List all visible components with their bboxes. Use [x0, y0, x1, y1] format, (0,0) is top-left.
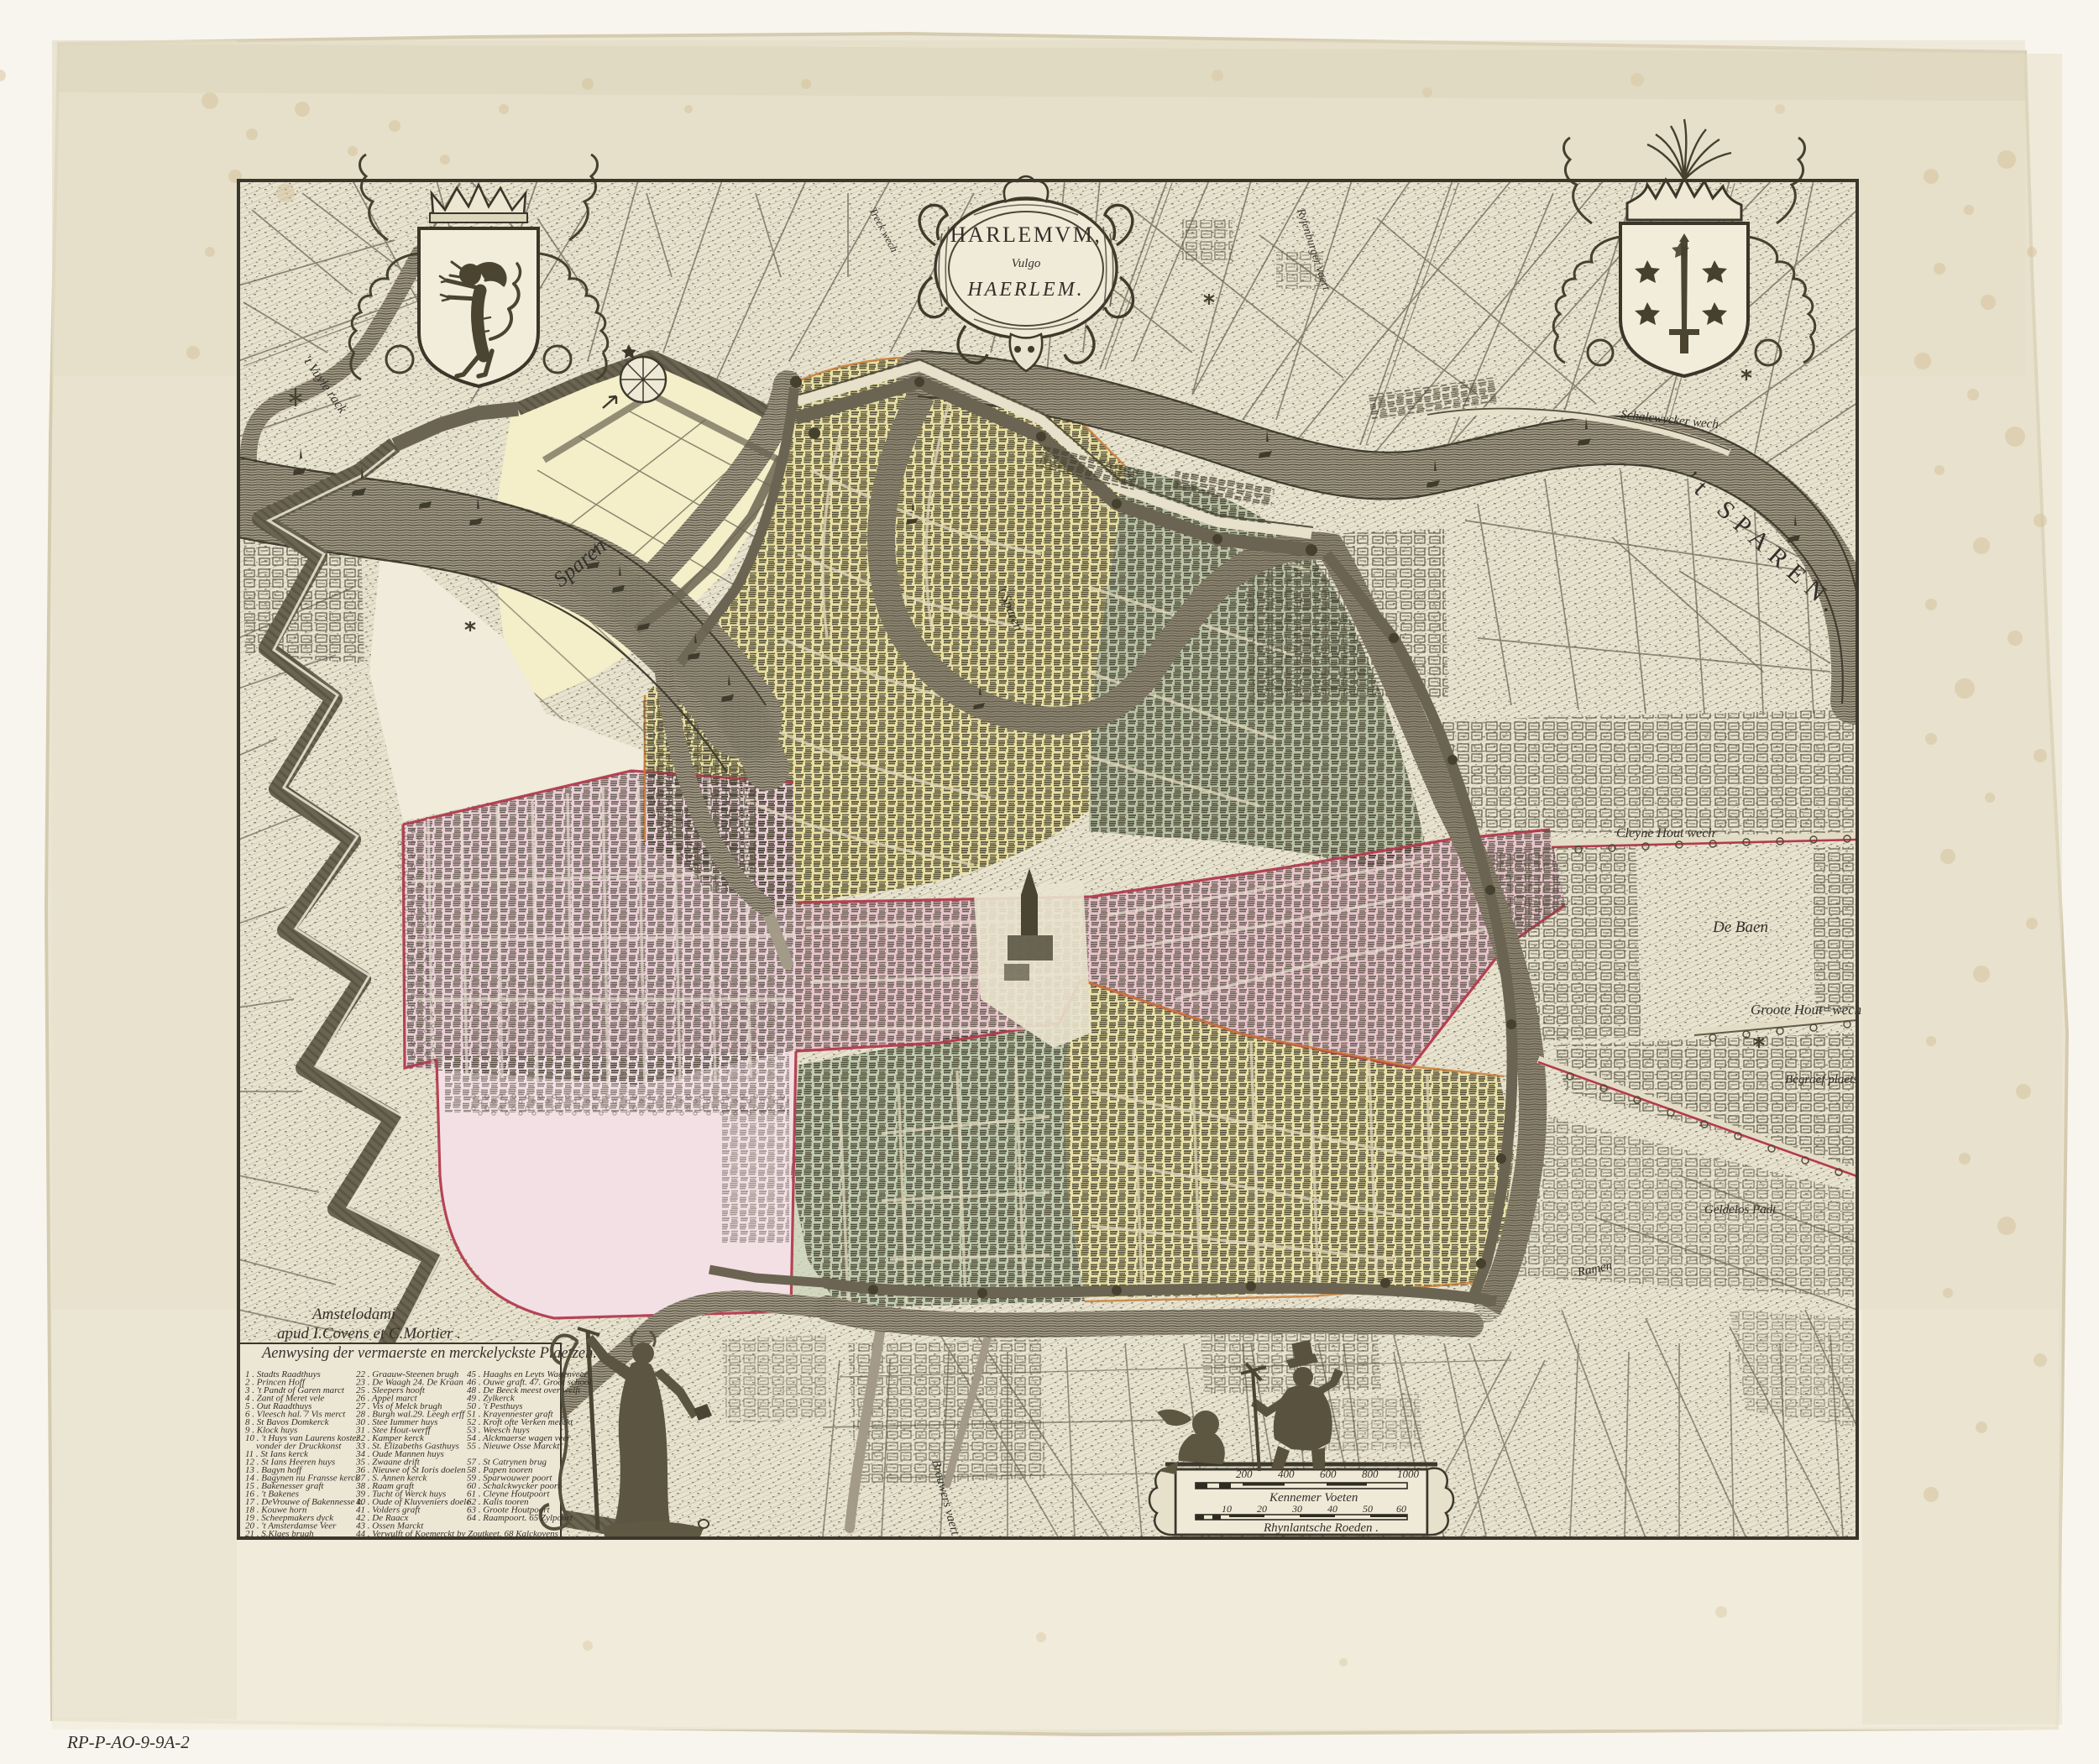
- svg-text:Begraef plaets: Begraef plaets: [1785, 1073, 1858, 1086]
- svg-text:50: 50: [1363, 1503, 1373, 1515]
- svg-text:800: 800: [1362, 1468, 1379, 1480]
- svg-text:Vulgo: Vulgo: [1012, 257, 1041, 270]
- svg-text:Amstelodami: Amstelodami: [311, 1306, 395, 1323]
- svg-text:200: 200: [1236, 1468, 1253, 1480]
- svg-text:HAERLEM.: HAERLEM.: [966, 279, 1084, 301]
- svg-text:Rhynlantsche Roeden .: Rhynlantsche Roeden .: [1263, 1521, 1379, 1535]
- svg-text:60: 60: [1396, 1503, 1406, 1515]
- svg-text:Groote Hout=wech: Groote Hout=wech: [1751, 1002, 1861, 1018]
- svg-text:10: 10: [1222, 1503, 1232, 1515]
- svg-text:600: 600: [1320, 1468, 1337, 1480]
- svg-text:HARLEMVM,: HARLEMVM,: [950, 222, 1102, 247]
- svg-text:Cleyne Hout wech: Cleyne Hout wech: [1616, 826, 1714, 840]
- svg-text:Aenwysing der vermaerste en me: Aenwysing der vermaerste en merckelyckst…: [260, 1345, 597, 1362]
- svg-text:400: 400: [1278, 1468, 1295, 1480]
- svg-text:Geldelos Padt: Geldelos Padt: [1704, 1203, 1777, 1217]
- svg-text:40: 40: [1327, 1503, 1337, 1515]
- svg-text:30: 30: [1291, 1503, 1302, 1515]
- svg-text:RP-P-AO-9-9A-2: RP-P-AO-9-9A-2: [66, 1732, 190, 1752]
- svg-text:64 . Raampoort. 65 Zylpoort: 64 . Raampoort. 65 Zylpoort: [467, 1513, 573, 1523]
- svg-text:De Baen: De Baen: [1712, 919, 1768, 936]
- svg-text:Kennemer Voeten: Kennemer Voeten: [1269, 1491, 1358, 1505]
- svg-text:apud I.Covens et C.Mortier .: apud I.Covens et C.Mortier .: [277, 1325, 461, 1343]
- svg-text:20: 20: [1257, 1503, 1267, 1515]
- svg-text:55 . Nieuwe Osse Marckt: 55 . Nieuwe Osse Marckt: [467, 1442, 560, 1452]
- svg-text:1000: 1000: [1397, 1468, 1420, 1480]
